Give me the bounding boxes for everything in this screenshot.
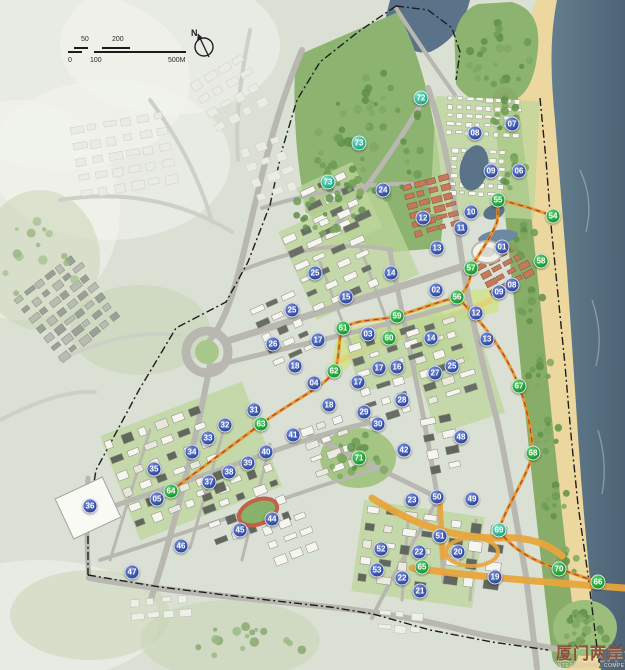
master-plan-screenshot: 0102030405060708080909101112121313141415… bbox=[0, 0, 625, 670]
map-marker-13: 13 bbox=[480, 332, 495, 347]
map-marker-02: 02 bbox=[429, 283, 444, 298]
map-marker-58: 58 bbox=[534, 254, 549, 269]
map-marker-39: 39 bbox=[241, 456, 256, 471]
map-marker-48: 48 bbox=[454, 430, 469, 445]
map-marker-28: 28 bbox=[395, 393, 410, 408]
map-marker-24: 24 bbox=[376, 183, 391, 198]
map-marker-40: 40 bbox=[259, 445, 274, 460]
map-marker-17: 17 bbox=[311, 333, 326, 348]
map-marker-46: 46 bbox=[174, 539, 189, 554]
map-marker-65: 65 bbox=[415, 560, 430, 575]
map-marker-33: 33 bbox=[201, 431, 216, 446]
north-arrow: N bbox=[188, 28, 218, 62]
map-marker-09: 09 bbox=[492, 285, 507, 300]
map-marker-10: 10 bbox=[464, 205, 479, 220]
map-marker-09: 09 bbox=[484, 164, 499, 179]
scale-label-50: 50 bbox=[81, 36, 89, 43]
map-marker-25: 25 bbox=[445, 359, 460, 374]
map-marker-29: 29 bbox=[357, 405, 372, 420]
map-marker-26: 26 bbox=[266, 337, 281, 352]
map-marker-66: 66 bbox=[591, 575, 606, 590]
map-marker-18: 18 bbox=[288, 359, 303, 374]
map-marker-53: 53 bbox=[370, 563, 385, 578]
scale-bar-rule bbox=[68, 47, 186, 54]
map-marker-27: 27 bbox=[428, 366, 443, 381]
map-marker-13: 13 bbox=[430, 241, 445, 256]
map-marker-37: 37 bbox=[202, 475, 217, 490]
map-marker-18: 18 bbox=[322, 398, 337, 413]
scale-label-500m: 500M bbox=[168, 57, 186, 64]
watermark-chinese-text: 厦门两岸金融 bbox=[556, 640, 625, 664]
map-marker-08: 08 bbox=[505, 278, 520, 293]
map-marker-23: 23 bbox=[405, 493, 420, 508]
map-marker-32: 32 bbox=[218, 418, 233, 433]
map-marker-63: 63 bbox=[254, 417, 269, 432]
map-marker-14: 14 bbox=[384, 266, 399, 281]
map-marker-68: 68 bbox=[526, 446, 541, 461]
map-marker-19: 19 bbox=[488, 570, 503, 585]
map-marker-45: 45 bbox=[233, 523, 248, 538]
map-marker-38: 38 bbox=[222, 465, 237, 480]
map-marker-20: 20 bbox=[451, 545, 466, 560]
map-marker-56: 56 bbox=[450, 290, 465, 305]
map-marker-73: 73 bbox=[352, 136, 367, 151]
map-marker-12: 12 bbox=[416, 211, 431, 226]
map-marker-16: 16 bbox=[390, 360, 405, 375]
map-marker-11: 11 bbox=[454, 221, 469, 236]
map-marker-70: 70 bbox=[552, 562, 567, 577]
scale-bar-top-labels: 50 200 bbox=[68, 36, 190, 45]
north-label: N bbox=[191, 28, 198, 38]
map-marker-42: 42 bbox=[397, 443, 412, 458]
map-marker-07: 07 bbox=[505, 117, 520, 132]
map-marker-22: 22 bbox=[412, 545, 427, 560]
map-marker-47: 47 bbox=[125, 565, 140, 580]
map-marker-21: 21 bbox=[413, 584, 428, 599]
map-marker-54: 54 bbox=[546, 209, 561, 224]
map-marker-64: 64 bbox=[164, 484, 179, 499]
map-marker-22: 22 bbox=[395, 571, 410, 586]
map-marker-12: 12 bbox=[469, 306, 484, 321]
map-marker-72: 72 bbox=[414, 91, 429, 106]
map-marker-52: 52 bbox=[374, 542, 389, 557]
scale-label-0: 0 bbox=[68, 57, 72, 64]
map-marker-55: 55 bbox=[491, 193, 506, 208]
map-marker-60: 60 bbox=[382, 331, 397, 346]
land-use-markers-layer: 0102030405060708080909101112121313141415… bbox=[0, 0, 625, 670]
map-marker-61: 61 bbox=[336, 321, 351, 336]
map-marker-51: 51 bbox=[433, 529, 448, 544]
map-marker-01: 01 bbox=[495, 240, 510, 255]
scale-label-100: 100 bbox=[90, 57, 102, 64]
scale-label-200: 200 bbox=[112, 36, 124, 43]
map-marker-25: 25 bbox=[285, 303, 300, 318]
map-marker-34: 34 bbox=[185, 445, 200, 460]
map-marker-35: 35 bbox=[147, 462, 162, 477]
map-marker-14: 14 bbox=[424, 331, 439, 346]
map-marker-59: 59 bbox=[390, 309, 405, 324]
map-marker-73: 73 bbox=[321, 175, 336, 190]
map-marker-67: 67 bbox=[512, 379, 527, 394]
map-marker-25: 25 bbox=[308, 266, 323, 281]
map-marker-71: 71 bbox=[352, 451, 367, 466]
map-marker-04: 04 bbox=[307, 376, 322, 391]
map-marker-57: 57 bbox=[464, 261, 479, 276]
map-marker-05: 05 bbox=[150, 492, 165, 507]
scale-bar: 50 200 0 100 500M bbox=[68, 36, 190, 70]
map-marker-17: 17 bbox=[372, 361, 387, 376]
map-marker-50: 50 bbox=[430, 490, 445, 505]
map-marker-17: 17 bbox=[351, 375, 366, 390]
map-marker-69: 69 bbox=[492, 523, 507, 538]
scale-bar-bottom-labels: 0 100 500M bbox=[68, 57, 190, 66]
map-marker-41: 41 bbox=[286, 428, 301, 443]
map-marker-31: 31 bbox=[247, 403, 262, 418]
map-marker-06: 06 bbox=[512, 164, 527, 179]
map-marker-36: 36 bbox=[83, 499, 98, 514]
map-marker-30: 30 bbox=[371, 417, 386, 432]
map-marker-49: 49 bbox=[465, 492, 480, 507]
watermark: 厦门两岸金融 INTERNATIONAL COMPETITION O bbox=[556, 640, 625, 669]
watermark-english-text: INTERNATIONAL COMPETITION O bbox=[556, 663, 625, 669]
map-marker-15: 15 bbox=[339, 290, 354, 305]
map-marker-03: 03 bbox=[361, 327, 376, 342]
map-marker-08: 08 bbox=[468, 126, 483, 141]
map-marker-62: 62 bbox=[327, 364, 342, 379]
map-marker-44: 44 bbox=[265, 512, 280, 527]
